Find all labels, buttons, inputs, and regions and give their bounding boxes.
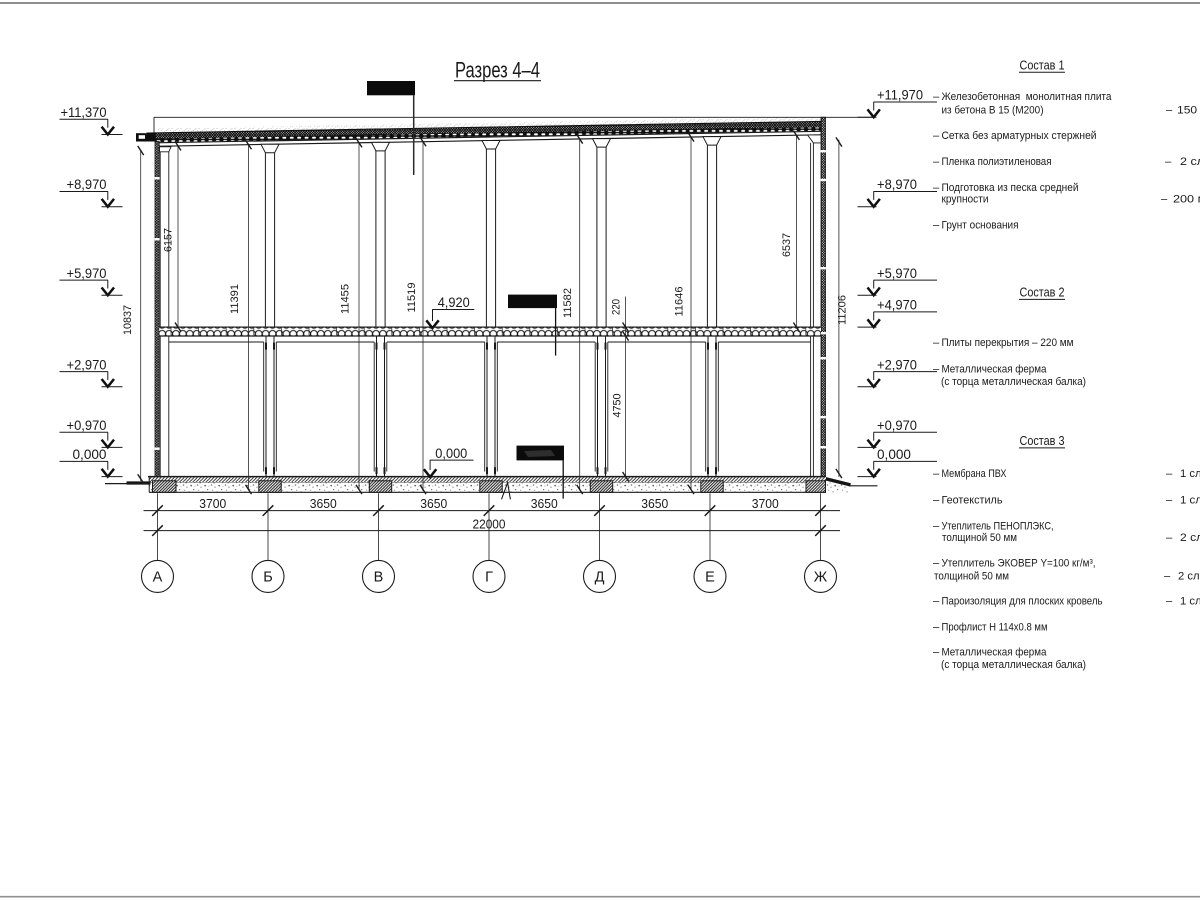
- svg-text:–: –: [933, 364, 940, 376]
- svg-text:–: –: [1161, 194, 1168, 206]
- svg-text:11646: 11646: [674, 287, 686, 317]
- svg-text:–: –: [1166, 532, 1173, 544]
- svg-text:+0,970: +0,970: [67, 417, 107, 433]
- svg-text:–: –: [1164, 571, 1171, 583]
- svg-text:1 сло: 1 сло: [1180, 596, 1200, 608]
- svg-text:11391: 11391: [229, 284, 241, 314]
- svg-text:Б: Б: [263, 569, 273, 585]
- svg-text:Утеплитель ЭКОВЕР Y=100 кг/м³,: Утеплитель ЭКОВЕР Y=100 кг/м³,: [942, 558, 1096, 570]
- svg-text:–: –: [1166, 105, 1173, 117]
- svg-text:3650: 3650: [531, 496, 558, 511]
- svg-text:10837: 10837: [122, 305, 134, 335]
- svg-text:+11,370: +11,370: [61, 104, 107, 120]
- svg-text:А: А: [153, 569, 163, 585]
- svg-text:22000: 22000: [473, 516, 506, 531]
- svg-text:3650: 3650: [310, 496, 337, 511]
- svg-text:–: –: [933, 558, 940, 570]
- svg-text:(с торца металлическая балка): (с торца металлическая балка): [941, 376, 1086, 388]
- svg-text:+4,970: +4,970: [877, 297, 917, 313]
- svg-text:4,920: 4,920: [438, 294, 470, 310]
- svg-text:Пленка полиэтиленовая: Пленка полиэтиленовая: [942, 156, 1052, 168]
- svg-text:1 сло: 1 сло: [1180, 468, 1200, 480]
- svg-text:–: –: [1165, 156, 1172, 168]
- svg-text:0,000: 0,000: [877, 446, 911, 462]
- svg-text:+2,970: +2,970: [67, 356, 107, 372]
- svg-text:3650: 3650: [641, 496, 668, 511]
- svg-text:Железобетонная монолитная пли: Железобетонная монолитная плита: [942, 91, 1113, 103]
- svg-text:–: –: [933, 596, 940, 608]
- svg-text:+11,970: +11,970: [877, 87, 923, 103]
- svg-text:–: –: [933, 91, 940, 103]
- svg-text:Металлическая ферма: Металлическая ферма: [942, 364, 1048, 376]
- svg-text:3700: 3700: [199, 496, 226, 511]
- svg-text:Плиты перекрытия – 220 мм: Плиты перекрытия – 220 мм: [942, 337, 1074, 349]
- svg-text:–: –: [1166, 596, 1173, 608]
- svg-text:2 слоя: 2 слоя: [1180, 156, 1200, 168]
- svg-text:Г: Г: [485, 569, 493, 585]
- svg-text:3650: 3650: [420, 496, 447, 511]
- svg-text:–: –: [933, 182, 940, 194]
- svg-text:200 мм: 200 мм: [1173, 194, 1200, 206]
- svg-text:4750: 4750: [611, 394, 623, 418]
- svg-text:+0,970: +0,970: [877, 417, 917, 433]
- svg-text:(с торца металлическая балка): (с торца металлическая балка): [941, 659, 1086, 671]
- svg-text:Профлист Н 114х0.8 мм: Профлист Н 114х0.8 мм: [942, 622, 1048, 634]
- svg-text:Утеплитель ПЕНОПЛЭКС,: Утеплитель ПЕНОПЛЭКС,: [942, 521, 1054, 533]
- svg-text:–: –: [933, 521, 940, 533]
- svg-text:Металлическая ферма: Металлическая ферма: [942, 647, 1048, 659]
- svg-text:+8,970: +8,970: [67, 176, 107, 192]
- svg-text:Подготовка из песка средней: Подготовка из песка средней: [942, 182, 1079, 194]
- svg-text:–: –: [1166, 495, 1173, 507]
- svg-text:Состав 1: Состав 1: [1020, 59, 1065, 73]
- svg-text:Пароизоляция для плоских крове: Пароизоляция для плоских кровель: [942, 596, 1103, 608]
- svg-text:толщиной 50 мм: толщиной 50 мм: [934, 571, 1009, 583]
- svg-text:150 мм: 150 мм: [1177, 105, 1200, 117]
- svg-text:11519: 11519: [406, 283, 418, 313]
- svg-text:11582: 11582: [562, 288, 574, 318]
- svg-text:6157: 6157: [162, 228, 174, 252]
- svg-text:–: –: [933, 647, 940, 659]
- svg-text:Геотекстиль: Геотекстиль: [942, 495, 1003, 507]
- svg-text:–: –: [933, 220, 940, 232]
- svg-text:3700: 3700: [752, 496, 779, 511]
- svg-text:0,000: 0,000: [435, 445, 467, 461]
- svg-text:–: –: [933, 495, 940, 507]
- svg-text:+8,970: +8,970: [877, 176, 917, 192]
- svg-text:Состав 3: Состав 3: [1020, 434, 1065, 448]
- svg-text:из бетона В 15 (М200): из бетона В 15 (М200): [942, 105, 1044, 117]
- svg-text:Мембрана ПВХ: Мембрана ПВХ: [942, 468, 1007, 480]
- svg-text:Грунт основания: Грунт основания: [942, 220, 1019, 232]
- svg-text:–: –: [933, 130, 940, 142]
- svg-text:220: 220: [611, 299, 623, 315]
- svg-text:Д: Д: [595, 569, 605, 585]
- svg-text:+5,970: +5,970: [67, 265, 107, 281]
- svg-text:2 слоя: 2 слоя: [1178, 571, 1200, 583]
- svg-text:2 сло: 2 сло: [1180, 532, 1200, 544]
- svg-text:+2,970: +2,970: [877, 356, 917, 372]
- svg-text:1 слоі: 1 слоі: [1180, 495, 1200, 507]
- svg-text:–: –: [933, 337, 940, 349]
- svg-text:крупности: крупности: [942, 194, 989, 206]
- svg-text:Е: Е: [705, 569, 715, 585]
- svg-text:–: –: [1166, 468, 1173, 480]
- svg-text:Ж: Ж: [814, 569, 828, 585]
- svg-text:толщиной 50 мм: толщиной 50 мм: [942, 532, 1017, 544]
- svg-text:0,000: 0,000: [73, 446, 107, 462]
- svg-text:11455: 11455: [340, 284, 352, 314]
- svg-text:В: В: [374, 569, 384, 585]
- svg-text:–: –: [933, 622, 940, 634]
- svg-text:6537: 6537: [781, 233, 793, 257]
- svg-text:Состав 2: Состав 2: [1020, 286, 1065, 300]
- svg-text:Сетка без арматурных стержней: Сетка без арматурных стержней: [942, 130, 1097, 142]
- svg-text:+5,970: +5,970: [877, 265, 917, 281]
- svg-text:11206: 11206: [837, 295, 849, 325]
- svg-text:–: –: [933, 156, 940, 168]
- svg-text:–: –: [933, 468, 940, 480]
- svg-text:Разрез 4–4: Разрез 4–4: [455, 58, 540, 83]
